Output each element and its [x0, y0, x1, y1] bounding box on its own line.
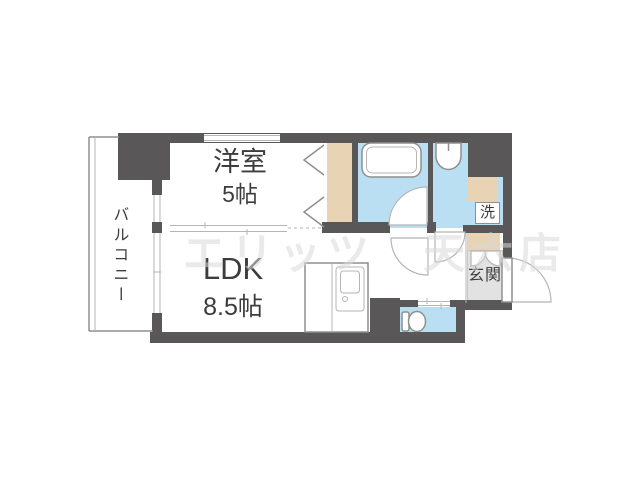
western-room-size: 5帖	[222, 181, 258, 207]
western-room-name: 洋室	[175, 147, 305, 178]
western-room-label: 洋室 5帖	[175, 147, 305, 209]
closet	[327, 143, 352, 225]
closet-folding-door-icon	[304, 145, 324, 227]
toilet-floor	[400, 307, 456, 333]
wall-bath-wash	[428, 140, 433, 228]
bathroom-floor	[358, 140, 428, 228]
wall-bottom-entrance	[456, 300, 512, 310]
balcony-label: バルコニー	[109, 196, 127, 316]
ldk-size: 8.5帖	[203, 293, 263, 321]
floor-plan: 洋室 5帖 LDK 8.5帖 バルコニー 玄関 洗 エリッツ 天六店	[0, 0, 640, 480]
wall-toilet-top-right	[450, 300, 458, 307]
watermark-text: エリッツ 天六店	[183, 220, 567, 281]
wall-left-a	[152, 143, 162, 195]
wall-step-connector	[456, 305, 465, 343]
washer-counter	[468, 177, 498, 201]
wall-closet-bath	[352, 140, 358, 228]
wall-left-b	[152, 222, 162, 233]
wall-pillar	[118, 133, 170, 180]
wall-bottom-main	[150, 332, 465, 343]
wall-toilet-top-left	[400, 300, 418, 307]
wall-toilet-left	[370, 298, 400, 343]
window-west	[152, 195, 162, 313]
wall-top	[118, 133, 512, 143]
